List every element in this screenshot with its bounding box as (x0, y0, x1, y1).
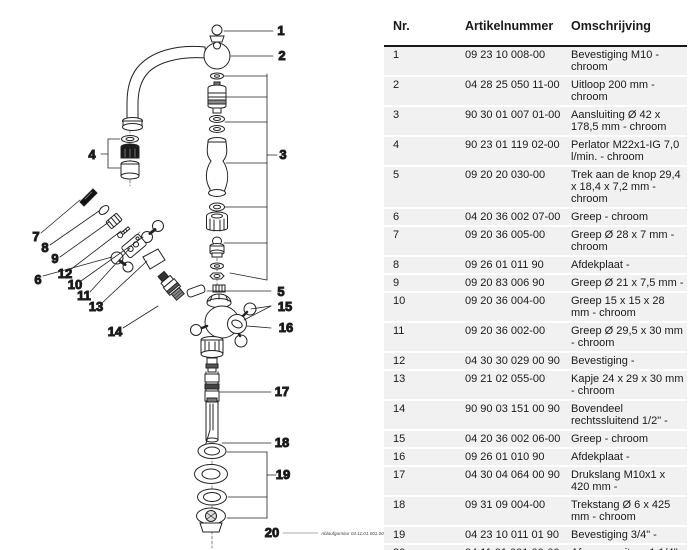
artikelnummer-cell: 90 30 01 007 01-00 (456, 106, 562, 136)
callout-9-label: 9 (51, 251, 58, 266)
table-row: 1504 20 36 002 06-00Greep - chroom (384, 430, 687, 448)
callout-5-label: 5 (277, 284, 284, 299)
callout-7-label: 7 (32, 229, 39, 244)
callout-14-label: 14 (108, 324, 123, 339)
omschrijving-cell: Uitloop 200 mm - chroom (562, 76, 687, 106)
nr-cell: 1 (384, 46, 456, 76)
nr-cell: 4 (384, 136, 456, 166)
nr-cell: 14 (384, 400, 456, 430)
artikelnummer-cell: 04 30 30 029 00 90 (456, 352, 562, 370)
drain-set-annotation: Ablaufgarnitur 04.11.01.001.00-# (320, 531, 385, 536)
nr-cell: 12 (384, 352, 456, 370)
table-row: 909 20 83 006 90Greep Ø 21 x 7,5 mm - (384, 274, 687, 292)
artikelnummer-cell: 09 26 01 010 90 (456, 448, 562, 466)
omschrijving-cell: Greep Ø 28 x 7 mm - chroom (562, 226, 687, 256)
callout-4-leader (101, 139, 120, 168)
artikelnummer-cell: 09 31 09 004-00 (456, 496, 562, 526)
artikelnummer-cell: 09 20 36 002-00 (456, 322, 562, 352)
artikelnummer-cell: 90 23 01 119 02-00 (456, 136, 562, 166)
artikelnummer-cell: 04 11 01 001 00-00 (456, 544, 562, 550)
omschrijving-cell: Greep 15 x 15 x 28 mm - chroom (562, 292, 687, 322)
callout-17-18-leaders (220, 392, 271, 443)
artikelnummer-cell: 09 26 01 011 90 (456, 256, 562, 274)
nr-cell: 6 (384, 208, 456, 226)
table-row: 390 30 01 007 01-00Aansluiting Ø 42 x 17… (384, 106, 687, 136)
omschrijving-cell: Bevestiging M10 - chroom (562, 46, 687, 76)
riser-stack (206, 73, 227, 279)
nr-cell: 20 (384, 544, 456, 550)
nr-cell: 11 (384, 322, 456, 352)
artikelnummer-cell: 09 20 36 004-00 (456, 292, 562, 322)
callout-18-label: 18 (275, 435, 289, 450)
table-row: 2004 11 01 001 00-00Afvoergarnituur 1 1/… (384, 544, 687, 550)
omschrijving-cell: Kapje 24 x 29 x 30 mm - chroom (562, 370, 687, 400)
nr-cell: 19 (384, 526, 456, 544)
artikelnummer-cell: 09 20 36 005-00 (456, 226, 562, 256)
table-row: 109 23 10 008-00Bevestiging M10 - chroom (384, 46, 687, 76)
nr-cell: 15 (384, 430, 456, 448)
table-row: 490 23 01 119 02-00Perlator M22x1-IG 7,0… (384, 136, 687, 166)
omschrijving-cell: Bevestiging - (562, 352, 687, 370)
artikelnummer-cell: 09 21 02 055-00 (456, 370, 562, 400)
artikelnummer-cell: 04 30 04 064 00 90 (456, 466, 562, 496)
nr-cell: 5 (384, 166, 456, 208)
table-row: 1309 21 02 055-00Kapje 24 x 29 x 30 mm -… (384, 370, 687, 400)
callout-16-label: 16 (279, 320, 293, 335)
omschrijving-cell: Aansluiting Ø 42 x 178,5 mm - chroom (562, 106, 687, 136)
parts-table: Nr. Artikelnummer Omschrijving 109 23 10… (384, 13, 687, 550)
nr-cell: 13 (384, 370, 456, 400)
table-row: 1609 26 01 010 90Afdekplaat - (384, 448, 687, 466)
omschrijving-cell: Bovendeel rechtssluitend 1/2" - (562, 400, 687, 430)
knob-part (210, 25, 224, 42)
hose-and-rod (204, 372, 219, 450)
omschrijving-cell: Greep Ø 21 x 7,5 mm - (562, 274, 687, 292)
callout-3-leader (224, 74, 277, 280)
nr-cell: 2 (384, 76, 456, 106)
omschrijving-cell: Greep Ø 29,5 x 30 mm - chroom (562, 322, 687, 352)
omschrijving-cell: Trekstang Ø 6 x 425 mm - chroom (562, 496, 687, 526)
callout-3-label: 3 (279, 147, 286, 162)
nr-cell: 3 (384, 106, 456, 136)
mounting-rings (195, 444, 228, 533)
callout-4-label: 4 (88, 147, 96, 162)
table-row: 809 26 01 011 90Afdekplaat - (384, 256, 687, 274)
artikelnummer-cell: 04 28 25 050 11-00 (456, 76, 562, 106)
artikelnummer-cell: 09 20 20 030-00 (456, 166, 562, 208)
header-nr: Nr. (384, 13, 456, 46)
artikelnummer-cell: 90 90 03 151 00 90 (456, 400, 562, 430)
table-row: 1704 30 04 064 00 90Drukslang M10x1 x 42… (384, 466, 687, 496)
exploded-faucet-diagram: 4 (0, 0, 385, 550)
omschrijving-cell: Trek aan de knop 29,4 x 18,4 x 7,2 mm - … (562, 166, 687, 208)
table-row: 1490 90 03 151 00 90Bovendeel rechtsslui… (384, 400, 687, 430)
nr-cell: 9 (384, 274, 456, 292)
callout-1-2-leaders (224, 31, 273, 56)
table-row: 709 20 36 005-00Greep Ø 28 x 7 mm - chro… (384, 226, 687, 256)
table-header-row: Nr. Artikelnummer Omschrijving (384, 13, 687, 46)
table-row: 604 20 36 002 07-00Greep - chroom (384, 208, 687, 226)
artikelnummer-cell: 04 20 36 002 07-00 (456, 208, 562, 226)
callout-6-label: 6 (34, 272, 41, 287)
header-artikelnummer: Artikelnummer (456, 13, 562, 46)
nr-cell: 17 (384, 466, 456, 496)
omschrijving-cell: Bevestiging 3/4" - (562, 526, 687, 544)
omschrijving-cell: Perlator M22x1-IG 7,0 l/min. - chroom (562, 136, 687, 166)
spare-parts-sheet: 4 (0, 0, 694, 550)
callout-8-label: 8 (41, 240, 48, 255)
aerator-parts (121, 136, 139, 180)
table-row: 509 20 20 030-00Trek aan de knop 29,4 x … (384, 166, 687, 208)
table-row: 1904 23 10 011 01 90Bevestiging 3/4" - (384, 526, 687, 544)
table-row: 204 28 25 050 11-00Uitloop 200 mm - chro… (384, 76, 687, 106)
callout-15-label: 15 (278, 299, 292, 314)
nr-cell: 10 (384, 292, 456, 322)
callout-1-label: 1 (277, 23, 284, 38)
artikelnummer-cell: 09 23 10 008-00 (456, 46, 562, 76)
nr-cell: 8 (384, 256, 456, 274)
table-row: 1009 20 36 004-00Greep 15 x 15 x 28 mm -… (384, 292, 687, 322)
header-omschrijving: Omschrijving (562, 13, 687, 46)
callout-19-leader (227, 452, 276, 518)
table-row: 1809 31 09 004-00Trekstang Ø 6 x 425 mm … (384, 496, 687, 526)
callout-2-label: 2 (278, 48, 285, 63)
omschrijving-cell: Drukslang M10x1 x 420 mm - (562, 466, 687, 496)
nr-cell: 7 (384, 226, 456, 256)
faucet-body (186, 284, 256, 372)
callout-13-label: 13 (89, 299, 103, 314)
artikelnummer-cell: 04 23 10 011 01 90 (456, 526, 562, 544)
callout-19-label: 19 (276, 467, 290, 482)
nr-cell: 18 (384, 496, 456, 526)
table-row: 1109 20 36 002-00Greep Ø 29,5 x 30 mm - … (384, 322, 687, 352)
table-row: 1204 30 30 029 00 90Bevestiging - (384, 352, 687, 370)
handle-parts (80, 189, 186, 301)
omschrijving-cell: Greep - chroom (562, 430, 687, 448)
omschrijving-cell: Afvoergarnituur 1 1/4" - chroom (562, 544, 687, 550)
callout-17-label: 17 (275, 384, 289, 399)
nr-cell: 16 (384, 448, 456, 466)
callout-20-label: 20 (265, 525, 279, 540)
omschrijving-cell: Afdekplaat - (562, 448, 687, 466)
omschrijving-cell: Afdekplaat - (562, 256, 687, 274)
artikelnummer-cell: 09 20 83 006 90 (456, 274, 562, 292)
omschrijving-cell: Greep - chroom (562, 208, 687, 226)
artikelnummer-cell: 04 20 36 002 06-00 (456, 430, 562, 448)
